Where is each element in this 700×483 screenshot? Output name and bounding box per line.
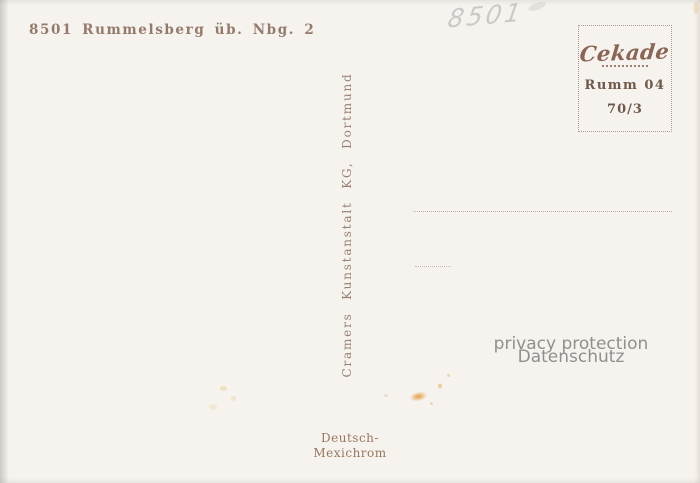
address-dotted-line <box>413 211 672 212</box>
stamp-box-reference: Rumm 04 <box>579 78 671 93</box>
scan-edge-top <box>0 0 700 5</box>
stain-dot <box>430 402 433 405</box>
stamp-box: Cekade Rumm 04 70/3 <box>578 25 672 132</box>
stain-dot <box>438 384 442 388</box>
print-note-line2: Mexichrom <box>313 446 386 461</box>
stamp-box-number: 70/3 <box>579 102 671 117</box>
handwritten-postal-code: 8501 <box>446 0 526 34</box>
scan-edge-bottom <box>0 478 700 483</box>
privacy-watermark: privacy protection Datenschutz <box>494 338 649 364</box>
stain-dot <box>209 404 217 410</box>
postcard-back: 8501 Rummelsberg üb. Nbg. 2 8501 Cekade … <box>0 0 700 483</box>
print-note-line1: Deutsch- <box>313 431 386 446</box>
stain-dot <box>231 396 236 401</box>
publisher-logo-cekade: Cekade <box>579 40 671 64</box>
scan-edge-right <box>694 0 700 483</box>
logo-underline <box>602 65 648 70</box>
stain-dot <box>384 394 388 397</box>
print-process-note: Deutsch- Mexichrom <box>313 431 386 461</box>
orange-stain <box>409 390 427 402</box>
stain-dot <box>447 374 450 377</box>
postcard-title-code: 8501 Rummelsberg üb. Nbg. 2 <box>29 22 315 38</box>
address-dotted-line-short <box>415 266 451 267</box>
stain-dot <box>220 386 227 391</box>
publisher-imprint-vertical: Cramers Kunstanstalt KG, Dortmund <box>340 73 354 378</box>
scan-edge-left <box>0 0 9 483</box>
edge-stain <box>693 2 699 14</box>
